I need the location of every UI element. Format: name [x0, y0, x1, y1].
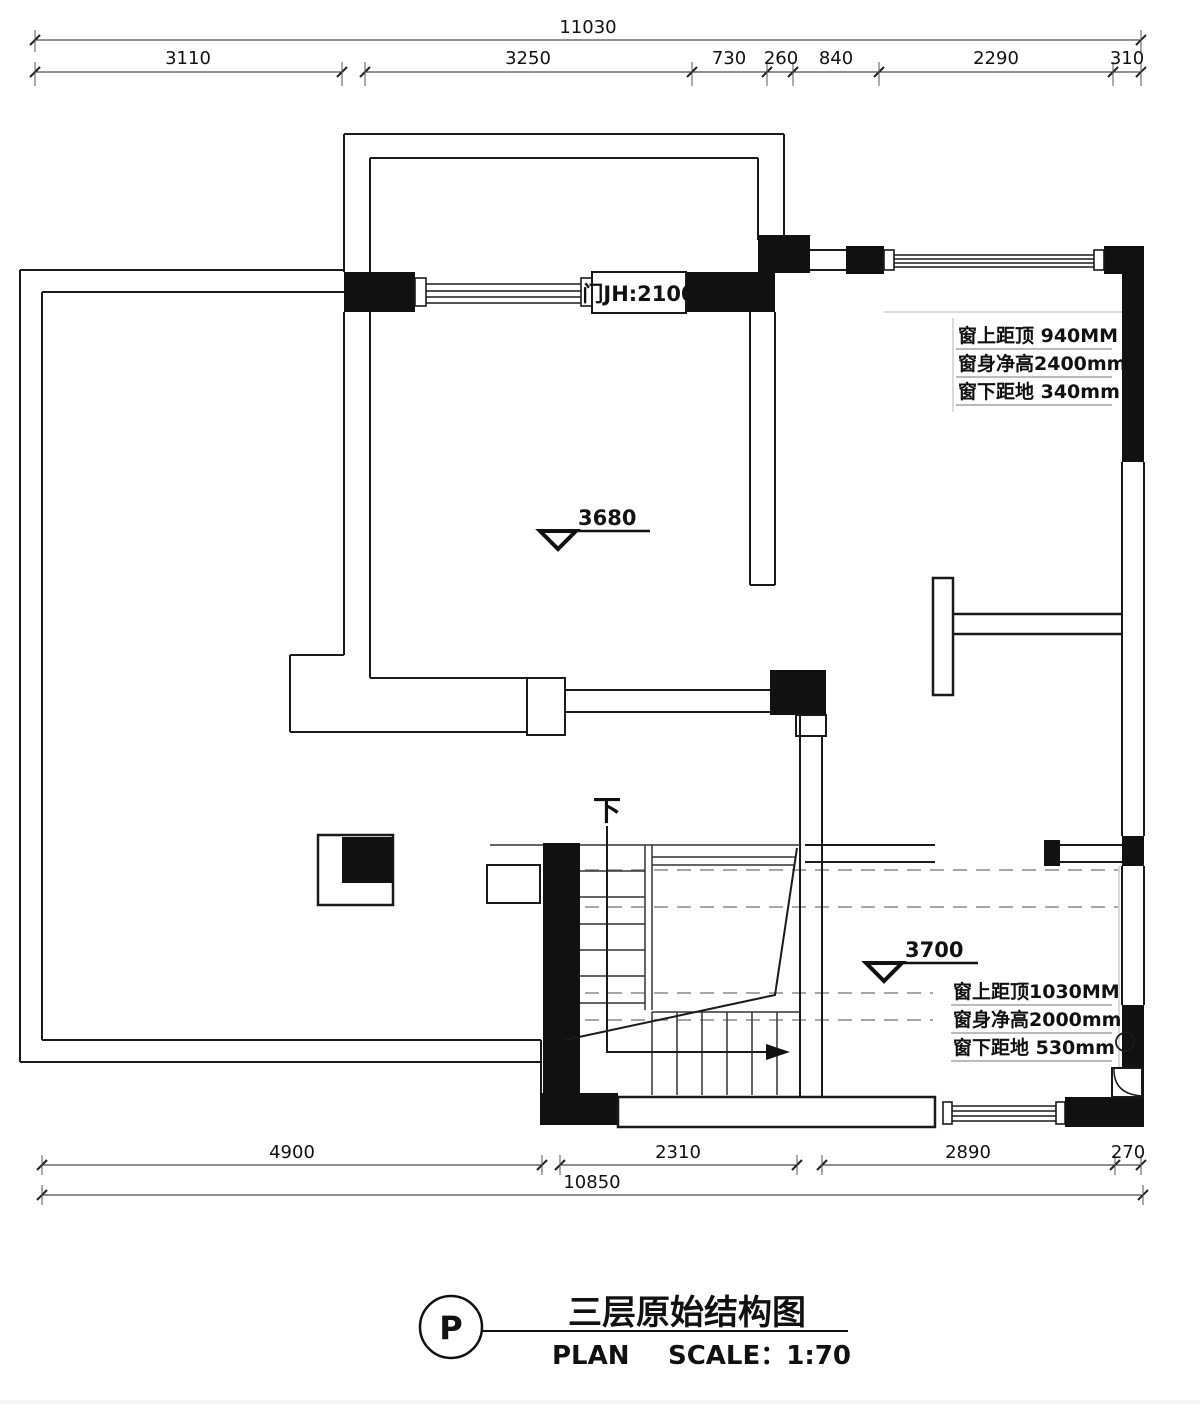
window-glazing-lines [426, 284, 581, 303]
window-end-cap [884, 250, 894, 270]
partition-stub-wall [933, 578, 953, 695]
bottom-notch-box [527, 678, 565, 735]
right-exterior-wall [1122, 252, 1144, 1100]
upper-room-walls [290, 134, 784, 735]
corridor-walls [805, 845, 1122, 862]
wall-pier-black [846, 246, 884, 274]
dim-bottom-seg-3: 270 [1111, 1142, 1145, 1163]
dim-top-seg-3: 260 [764, 48, 798, 69]
dim-top-seg-4: 840 [819, 48, 853, 69]
floor-plan-sheet: 11030 3110 3250 730 260 840 2290 310 [0, 0, 1200, 1400]
window-end-cap [1094, 250, 1104, 270]
drawing-title: 三层原始结构图 [568, 1293, 806, 1333]
stair-upper-treads [580, 871, 645, 1003]
upper-room-outer [344, 134, 784, 240]
elevation-lower-triangle [866, 963, 902, 981]
window-annotation-lower: 窗上距顶1030MM 窗身净高2000mm 窗下距地 530mm [951, 980, 1121, 1061]
plan-label: PLAN [552, 1341, 630, 1371]
dim-top-seg-1: 3250 [505, 48, 551, 69]
stair-wall-black [543, 843, 580, 1095]
floor-plan-canvas: 11030 3110 3250 730 260 840 2290 310 [0, 0, 1200, 1400]
dimension-labels-bottom: 4900 2310 2890 270 10850 [269, 1142, 1145, 1193]
room-bottom-double-wall [565, 690, 770, 712]
ann-lower-line2: 窗身净高2000mm [953, 1008, 1121, 1031]
left-step-wall [290, 655, 527, 732]
top-wall-segment [810, 250, 846, 270]
dim-top-overall: 11030 [559, 17, 616, 38]
wall-pier-black [686, 272, 775, 312]
elevation-marker-lower: 3700 [866, 938, 978, 981]
window-end-cap [1056, 1102, 1065, 1124]
dim-bottom-overall: 10850 [563, 1172, 620, 1193]
wall-pier-black [758, 235, 810, 273]
terrace-inner [42, 292, 541, 1093]
dim-top-seg-6: 310 [1110, 48, 1144, 69]
window-top-middle [344, 235, 810, 312]
stair-lower-treads [677, 1012, 777, 1095]
stair-wall-black-L [540, 1093, 618, 1125]
dim-bottom-seg-0: 4900 [269, 1142, 315, 1163]
dim-top-seg-5: 2290 [973, 48, 1019, 69]
wall-end-cap-black [1044, 840, 1060, 866]
terrace-parapet [20, 270, 541, 1093]
ann-upper-line2: 窗身净高2400mm [958, 352, 1126, 375]
terrace-outer [20, 270, 541, 1062]
bottom-wall-band [618, 1097, 935, 1127]
elevation-upper-triangle [540, 531, 576, 549]
upper-room-right-wall [750, 312, 775, 585]
window-end-cap [943, 1102, 952, 1124]
stair-core [487, 843, 800, 1125]
wall-thin-segment [1122, 866, 1144, 1005]
stair-stringer [645, 845, 652, 1010]
window-end-cap [415, 278, 426, 306]
stair-path-arrow-line [607, 826, 766, 1052]
ann-lower-line3: 窗下距地 530mm [953, 1036, 1115, 1059]
window-glazing-lines [952, 1106, 1056, 1121]
elevation-lower-text: 3700 [905, 938, 963, 962]
wall-pier-black [1065, 1097, 1144, 1127]
stair-direction: 下 [593, 794, 790, 1060]
title-block: P 三层原始结构图 PLAN SCALE：1:70 [420, 1293, 851, 1371]
dim-bottom-seg-2: 2890 [945, 1142, 991, 1163]
door-label-text: 门JH:2100 [582, 282, 695, 306]
dim-top-seg-2: 730 [712, 48, 746, 69]
upper-room-left-top [344, 134, 370, 278]
stair-right-room-wall [800, 714, 822, 1097]
door-height-label: 门JH:2100 [582, 272, 695, 313]
stair-down-text: 下 [593, 794, 621, 827]
partition-horizontal-wall [953, 614, 1122, 634]
upper-room-inner [370, 158, 758, 240]
elevation-marker-upper: 3680 [540, 506, 650, 549]
ann-upper-line1: 窗上距顶 940MM [958, 324, 1118, 347]
column-black [770, 670, 826, 715]
window-top-right-band [810, 246, 1144, 274]
elevation-upper-text: 3680 [578, 506, 636, 530]
terrace-column-black [342, 837, 393, 883]
stair-break-line [565, 848, 797, 1040]
window-glazing-lines [894, 255, 1094, 267]
scale-label: SCALE：1:70 [668, 1341, 851, 1371]
stair-notch-box [487, 865, 540, 903]
upper-room-left-wall [344, 312, 370, 678]
stairwell-inner-edge [652, 857, 795, 865]
wall-thin-segment [1122, 462, 1144, 836]
ann-upper-line3: 窗下距地 340mm [958, 380, 1120, 403]
window-annotation-upper: 窗上距顶 940MM 窗身净高2400mm 窗下距地 340mm [956, 324, 1126, 405]
ann-lower-line1: 窗上距顶1030MM [953, 980, 1120, 1003]
dim-top-seg-0: 3110 [165, 48, 211, 69]
wall-black-segment [1122, 836, 1144, 866]
wall-pier-black [344, 272, 415, 312]
dimension-labels-top: 11030 3110 3250 730 260 840 2290 310 [165, 17, 1144, 69]
stair-arrowhead [766, 1044, 790, 1060]
dim-bottom-seg-1: 2310 [655, 1142, 701, 1163]
plan-ref-letter: P [439, 1309, 462, 1347]
